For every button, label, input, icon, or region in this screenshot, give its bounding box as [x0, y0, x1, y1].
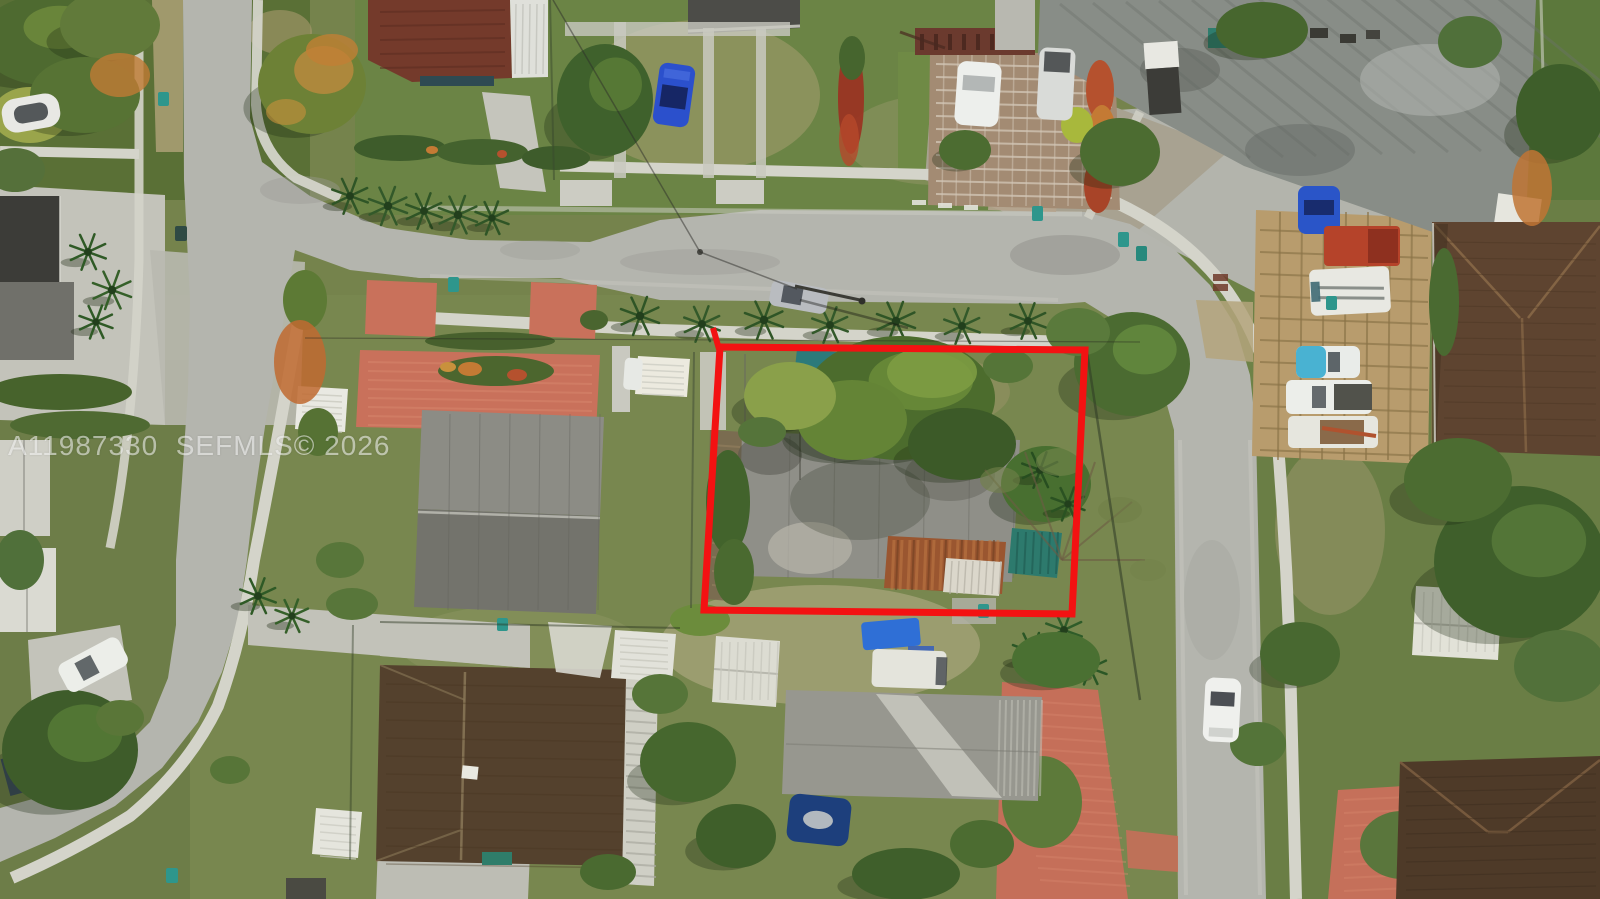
utility-pole — [697, 249, 703, 255]
truck-cab-white — [1144, 41, 1180, 69]
mls-watermark: A11987330 SEFMLS© 2026 — [8, 430, 390, 462]
garden-flowers — [507, 369, 527, 381]
car-windows — [962, 75, 995, 92]
tree-orange-bloom — [90, 53, 150, 97]
road-stain — [500, 240, 580, 260]
pickup-bed — [1334, 384, 1372, 410]
truck-bed — [1368, 229, 1398, 263]
trash-bin — [1136, 246, 1147, 261]
car-windows — [1328, 352, 1340, 372]
car-windshield — [1210, 691, 1235, 706]
skylight — [461, 765, 478, 780]
walkway-strip — [565, 22, 790, 36]
driveway-apron — [560, 180, 612, 206]
shrub — [96, 700, 144, 736]
shrub — [580, 310, 608, 330]
hedge-column — [1429, 248, 1459, 356]
shrub — [326, 588, 378, 620]
hedge-flowers — [426, 146, 438, 154]
brick-apron — [1126, 830, 1178, 872]
shrub — [210, 756, 250, 784]
yard-clutter — [1366, 30, 1380, 39]
road-stain — [1010, 235, 1120, 275]
shrub — [983, 349, 1033, 383]
house-wall-teal — [420, 76, 494, 86]
trash-bin — [158, 92, 169, 106]
tree-orange-bloom — [306, 34, 358, 66]
hedge-row — [522, 146, 590, 170]
pool — [482, 852, 512, 865]
trash-bin — [1118, 232, 1129, 247]
garden-flowers — [458, 362, 482, 376]
house-roof-gray — [0, 282, 74, 360]
roof-stain — [1245, 124, 1355, 176]
brick-apron — [365, 280, 437, 337]
brick-apron — [529, 282, 597, 339]
road-stain — [1184, 540, 1240, 660]
car-windows — [659, 84, 688, 109]
shrub-orange — [274, 320, 326, 404]
house-roof-dark — [0, 196, 60, 282]
shed-dark — [286, 878, 326, 899]
hedge-row — [436, 139, 528, 165]
walkway-strip — [756, 28, 766, 178]
parking-stone — [938, 203, 952, 208]
tarp-blue — [861, 618, 921, 651]
trash-bin — [1326, 296, 1337, 310]
tree-orange-bloom — [266, 99, 306, 125]
shrub — [738, 417, 786, 447]
shrub — [839, 36, 865, 80]
house-roof-brown-sw — [376, 665, 630, 866]
garden-bed — [438, 356, 554, 386]
sparse-foliage — [1098, 497, 1142, 523]
van-white-ladder — [1309, 266, 1391, 316]
car-windows — [1304, 200, 1334, 215]
hedge-flowers — [497, 150, 507, 158]
parking-stone — [912, 200, 926, 205]
garden-flowers — [440, 362, 456, 372]
sparse-foliage — [1130, 559, 1166, 581]
trash-bin-dark — [175, 226, 187, 241]
neighbor-roof-lower — [414, 509, 600, 614]
walkway-strip — [703, 28, 714, 178]
tree — [950, 820, 1014, 868]
car-white — [954, 61, 1002, 128]
shrub — [632, 674, 688, 714]
sparse-foliage — [980, 467, 1020, 493]
shrub — [316, 542, 364, 578]
car-white-carport — [623, 357, 643, 390]
trash-bin — [1032, 206, 1043, 221]
car-rear — [1209, 727, 1233, 737]
boxtruck-white — [871, 649, 946, 690]
driveway-apron — [716, 180, 764, 204]
bush-red-flowering — [839, 114, 859, 166]
streetlight-head — [859, 298, 866, 305]
aerial-photo: A11987330 SEFMLS© 2026 — [0, 0, 1600, 899]
neighbor-roof-upper — [418, 410, 604, 516]
pickup-bed — [1044, 51, 1071, 72]
yard-clutter — [1310, 28, 1328, 38]
storm-grate — [1213, 274, 1228, 281]
yard-clutter — [1340, 34, 1356, 43]
tree-highlight — [887, 346, 977, 398]
shrub-orange — [1512, 150, 1552, 226]
van-windshield — [1310, 282, 1320, 302]
car-windows — [1312, 386, 1326, 408]
truck-cab — [935, 657, 947, 685]
trash-bin — [166, 868, 178, 883]
shrub-column — [714, 539, 754, 605]
roof-gable-gray — [995, 0, 1035, 50]
storm-grate — [1213, 284, 1228, 291]
trash-bin — [448, 277, 459, 292]
parking-stone — [964, 205, 978, 210]
tree — [1438, 16, 1502, 68]
shrub — [580, 854, 636, 890]
car-teal-half — [1296, 346, 1326, 378]
truck-bed-dark — [1146, 67, 1181, 115]
hedge-row — [425, 332, 555, 350]
